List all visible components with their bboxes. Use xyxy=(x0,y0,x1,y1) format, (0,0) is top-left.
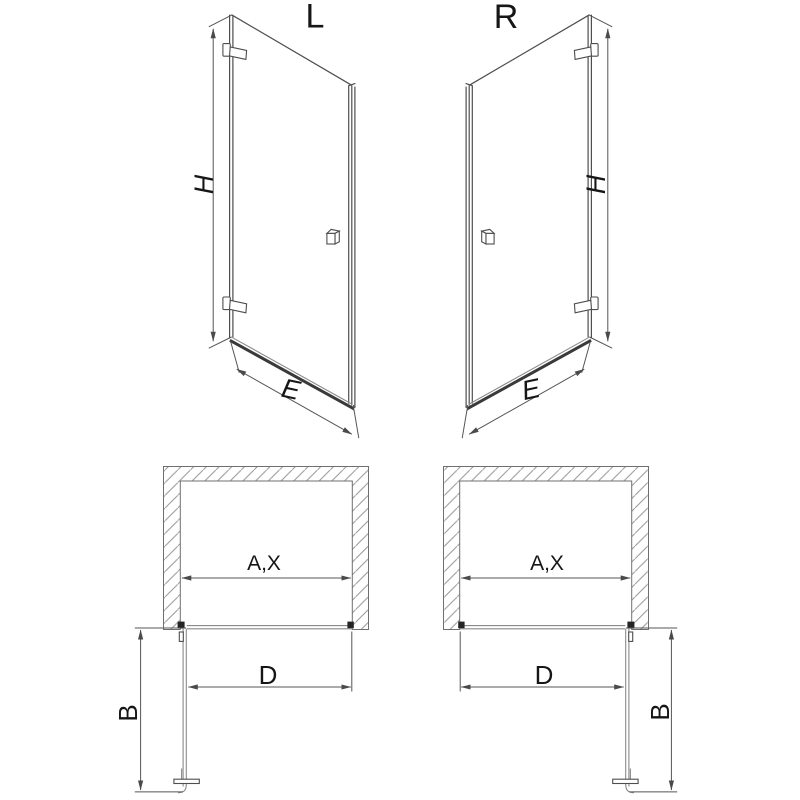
dim-label-depth-right: B xyxy=(645,703,675,720)
variant-label-l: L xyxy=(306,0,325,36)
technical-drawing-page: L R H H E E A,X A,X D D B B xyxy=(0,0,800,800)
dim-label-e-left: E xyxy=(279,373,304,406)
shower-door-diagram: L R H H E E A,X A,X D D B B xyxy=(0,0,800,800)
variant-label-r: R xyxy=(494,0,519,36)
dim-label-depth-left: B xyxy=(113,704,143,721)
wall-hatched-left xyxy=(164,467,369,630)
dim-label-e-right: E xyxy=(519,373,544,406)
wall-hatched-right xyxy=(444,467,649,630)
door-elevation-left xyxy=(209,15,359,439)
dim-label-h-left: H xyxy=(189,174,219,194)
dim-label-passage-right: D xyxy=(535,660,554,690)
dim-label-h-right: H xyxy=(581,174,611,194)
dim-label-opening-right: A,X xyxy=(530,552,564,575)
dim-label-opening-left: A,X xyxy=(247,552,281,575)
door-elevation-right xyxy=(462,15,612,439)
dim-label-passage-left: D xyxy=(259,660,278,690)
